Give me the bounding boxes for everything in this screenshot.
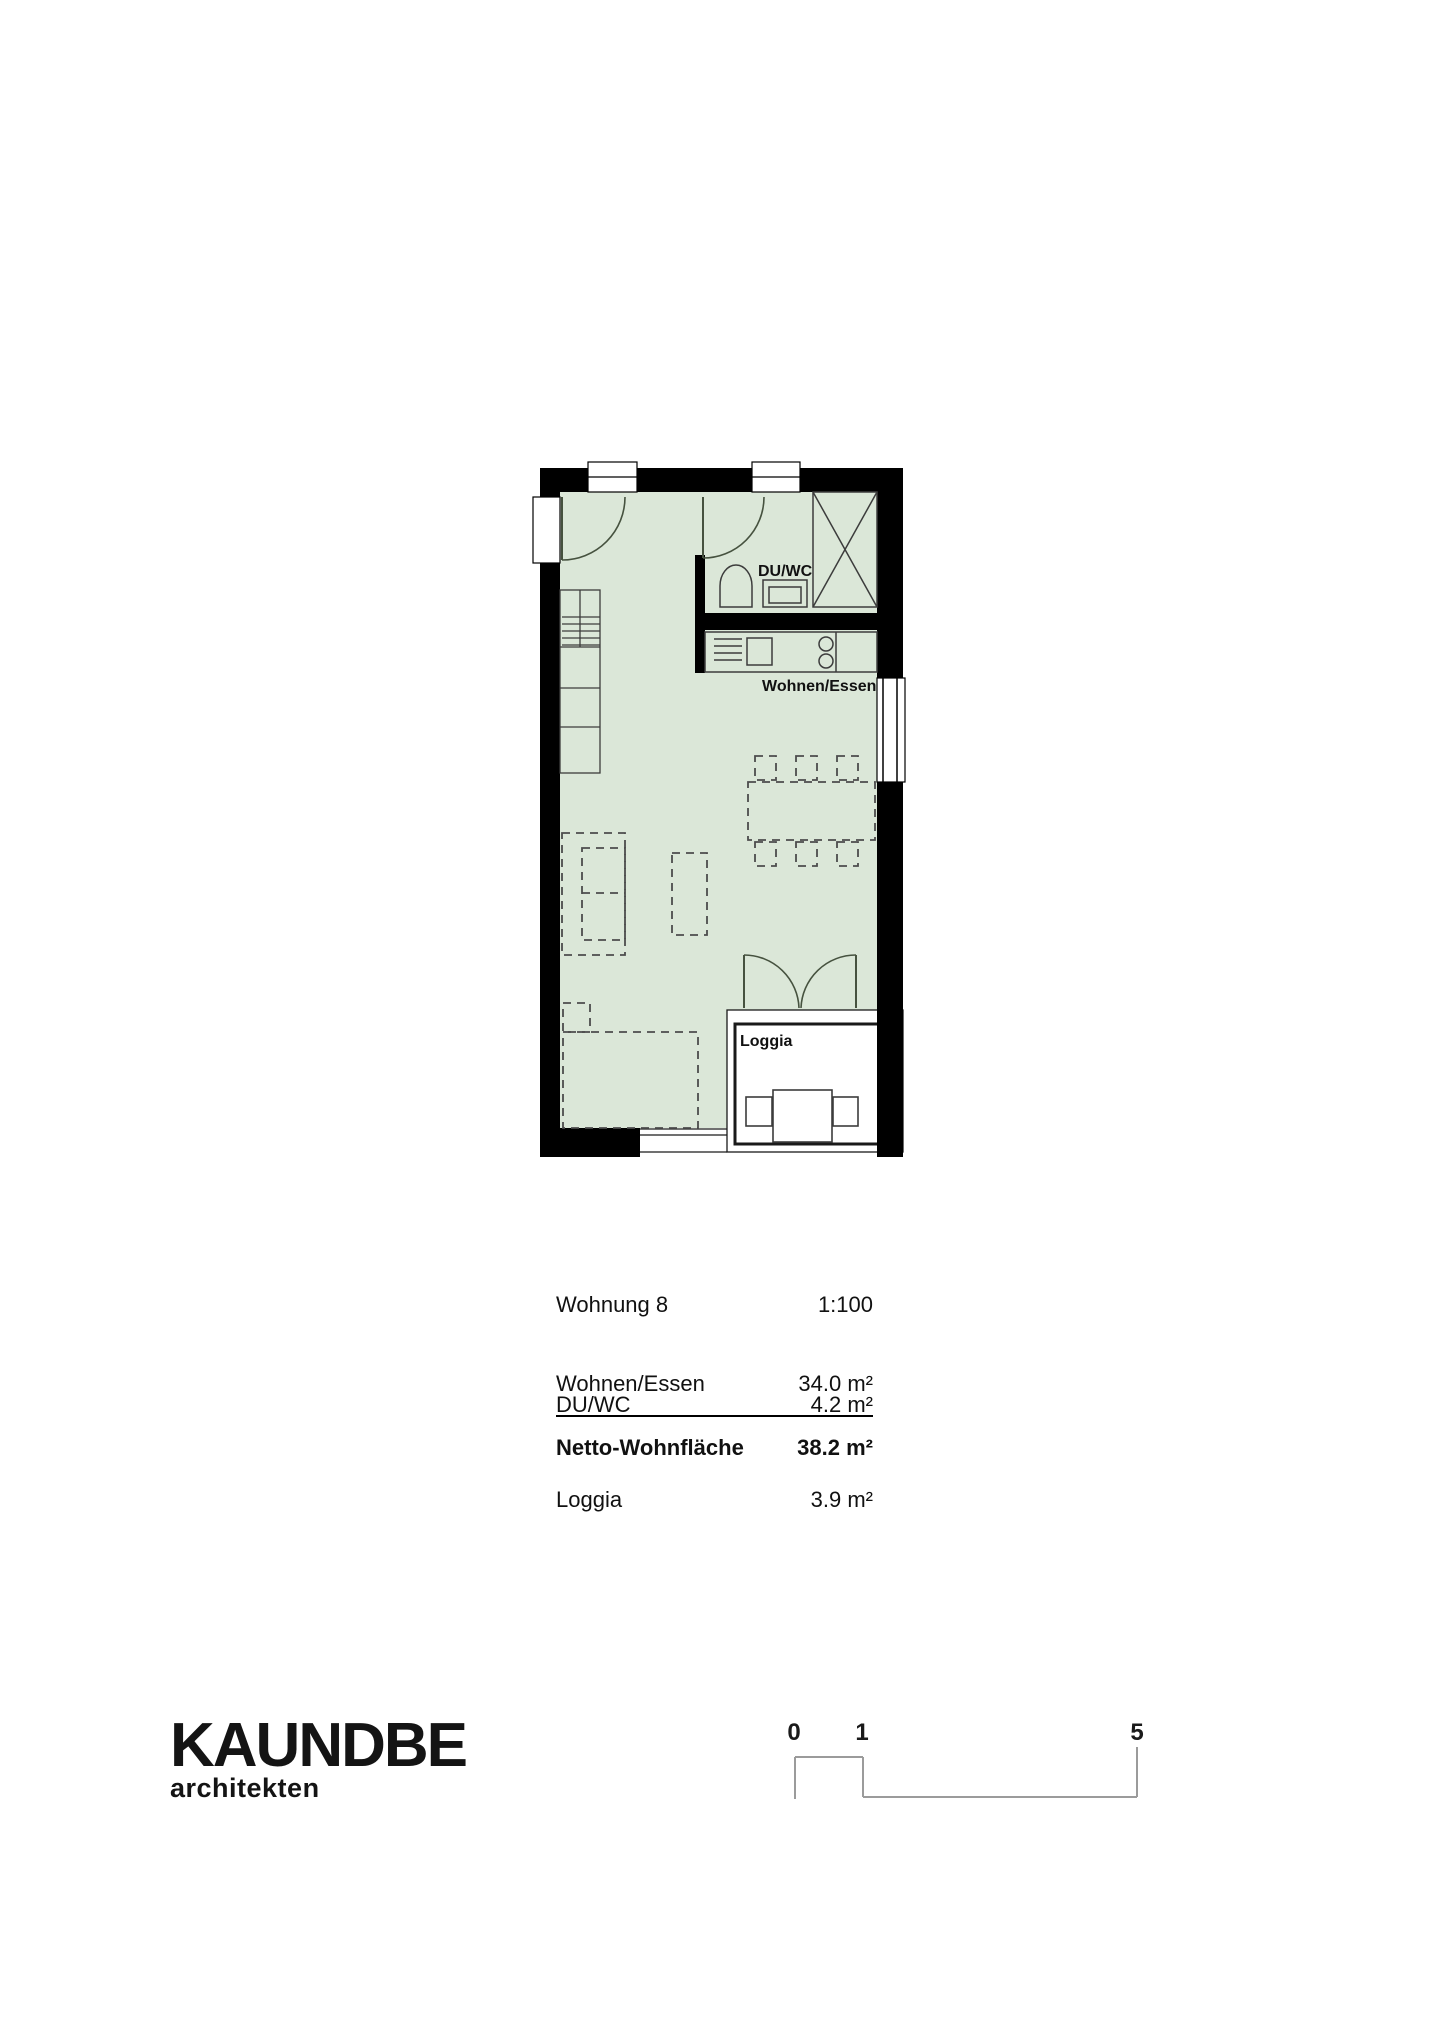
table-row: DU/WC 4.2 m² [556, 1394, 873, 1416]
table-sum-rule [556, 1415, 873, 1417]
scale-tick-5: 5 [1130, 1719, 1143, 1746]
scale-tick-1: 1 [855, 1719, 868, 1746]
top-window-left [588, 462, 637, 492]
total-label: Netto-Wohnfläche [556, 1437, 744, 1459]
top-window-right [752, 462, 800, 492]
room-label-wohnen-essen: Wohnen/Essen [762, 678, 876, 695]
right-wall-window [877, 678, 905, 782]
entry-door-opening [533, 497, 560, 563]
table-total-row: Netto-Wohnfläche 38.2 m² [556, 1437, 873, 1459]
scale-tick-0: 0 [787, 1719, 800, 1746]
south-facade-lines [640, 1129, 727, 1152]
floor-plan: DU/WC Wohnen/Essen Loggia [520, 450, 920, 1170]
area-table: Wohnung 8 1:100 Wohnen/Essen 34.0 m² DU/… [556, 1294, 873, 1534]
total-value: 38.2 m² [797, 1437, 873, 1459]
logo-name: KAUNDBE [170, 1718, 466, 1774]
room-label-duwc: DU/WC [758, 563, 813, 580]
scale-bar-lines [795, 1747, 1137, 1799]
scale-bar: 0 1 5 [770, 1712, 1155, 1812]
row-label: DU/WC [556, 1394, 631, 1416]
apartment-title: Wohnung 8 [556, 1294, 668, 1316]
table-row: Loggia 3.9 m² [556, 1489, 873, 1511]
row-label: Loggia [556, 1489, 622, 1511]
row-value: 3.9 m² [811, 1489, 873, 1511]
row-value: 4.2 m² [811, 1394, 873, 1416]
room-label-loggia: Loggia [740, 1033, 793, 1050]
loggia-room [727, 1010, 903, 1152]
drawing-scale: 1:100 [818, 1294, 873, 1316]
page: DU/WC Wohnen/Essen Loggia Wohnung 8 1:10… [0, 0, 1440, 2035]
table-title-row: Wohnung 8 1:100 [556, 1294, 873, 1316]
logo: KAUNDBE architekten [170, 1718, 466, 1802]
